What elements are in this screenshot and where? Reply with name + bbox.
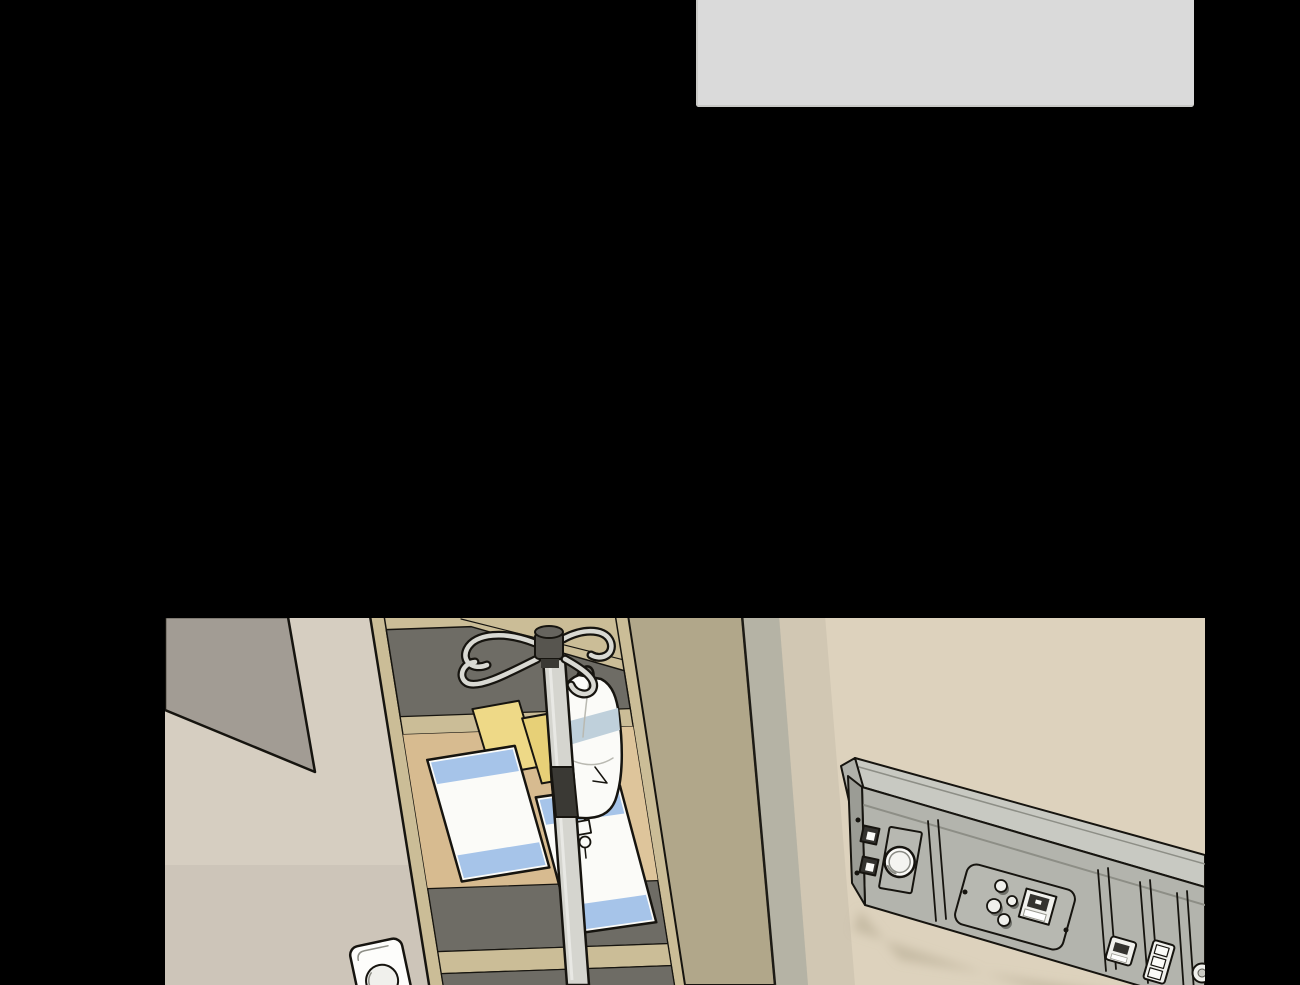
speech-bubble [696,0,1194,107]
screw [963,890,968,895]
headwall-button [860,857,879,876]
comic-page: { "page": { "type": "webtoon-comic-page"… [0,0,1300,985]
drip-chamber [580,837,591,848]
screw [856,818,861,823]
hospital-room-scene [165,615,1205,985]
headwall-button [861,826,880,845]
iv-pole-grip [551,767,578,817]
speech-bubble-text [696,0,1194,107]
hospital-room-panel [165,615,1205,985]
screw [1064,928,1069,933]
panel-top-edge [165,615,1205,618]
